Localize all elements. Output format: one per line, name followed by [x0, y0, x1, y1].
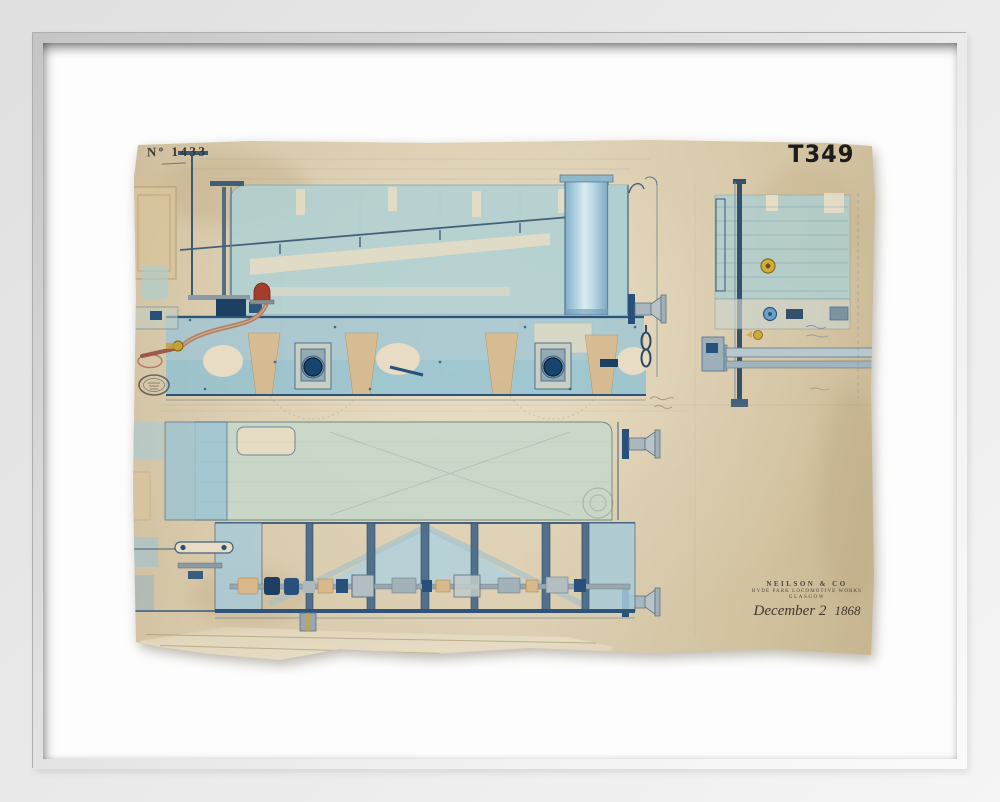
- drawing-shape: [334, 326, 337, 329]
- drawing-shape: [274, 361, 277, 364]
- smokebox-cylinder: [565, 179, 608, 315]
- drawing-shape: [472, 191, 481, 217]
- drawing-shape: [250, 300, 274, 304]
- drawing-shape: [582, 523, 635, 611]
- drawing-shape: [180, 545, 185, 550]
- mat-board: Nº 1433 T349 NEILSON & CO HYDE PARK LOCO…: [43, 43, 957, 759]
- bottom-elevation-view: [130, 422, 660, 631]
- end-section-view: [702, 179, 876, 407]
- drawing-sheet: Nº 1433 T349 NEILSON & CO HYDE PARK LOCO…: [130, 137, 876, 663]
- maker-name: NEILSON & CO: [728, 580, 886, 588]
- drawing-shape: [768, 312, 772, 316]
- drawing-number-label: Nº 1433: [147, 144, 208, 161]
- drawing-shape: [634, 326, 637, 329]
- drawing-shape: [546, 577, 568, 593]
- drawing-shape: [144, 379, 165, 392]
- drawing-shape: [737, 182, 742, 402]
- drawing-shape: [439, 361, 442, 364]
- drawing-shape: [388, 187, 397, 211]
- drawing-shape: [203, 345, 243, 377]
- drawing-shape: [569, 388, 572, 391]
- drawing-shape: [132, 175, 176, 185]
- drawing-shape: [142, 265, 168, 299]
- drawing-sheet-wrap: Nº 1433 T349 NEILSON & CO HYDE PARK LOCO…: [130, 137, 876, 663]
- drawing-shape: [422, 580, 432, 592]
- drawing-shape: [524, 326, 527, 329]
- drawing-shape: [629, 184, 644, 193]
- drawing-shape: [130, 575, 154, 611]
- boiler-pipe: [726, 348, 876, 357]
- drawing-shape: [238, 578, 258, 594]
- cab-panel: [237, 427, 295, 455]
- drawing-shape: [150, 311, 162, 320]
- left-margin-fragments-top: [130, 175, 178, 329]
- drawing-shape: [188, 571, 203, 579]
- drawing-shape: [731, 399, 748, 407]
- drawing-shape: [650, 397, 674, 400]
- catalogue-stamp-label: T349: [788, 140, 854, 168]
- drawing-shape: [336, 579, 348, 593]
- drawing-shape: [565, 309, 608, 315]
- framed-artwork-photo: Nº 1433 T349 NEILSON & CO HYDE PARK LOCO…: [0, 0, 1000, 802]
- maker-inscription: NEILSON & CO HYDE PARK LOCOMOTIVE WORKS …: [728, 580, 886, 620]
- drawing-shape: [526, 580, 538, 592]
- axlebox-1: [295, 343, 331, 389]
- drawing-shape: [608, 185, 628, 315]
- drawing-shape: [130, 422, 164, 460]
- drawing-shape: [284, 578, 299, 595]
- drawing-shape: [369, 388, 372, 391]
- buffer: [628, 294, 666, 324]
- drawing-shape: [130, 472, 150, 520]
- margin-notes: [806, 326, 829, 391]
- drawing-shape: [766, 264, 771, 269]
- drawing-shape: [304, 358, 322, 376]
- drawing-shape: [318, 579, 333, 593]
- drawing-shape: [260, 287, 510, 296]
- drawing-shape: [498, 578, 520, 593]
- drawing-shape: [189, 319, 192, 322]
- drawing-shape: [824, 193, 844, 213]
- drawing-shape: [830, 307, 848, 320]
- drawing-shape: [166, 343, 176, 349]
- axlebox-2: [535, 343, 571, 389]
- drawing-shape: [392, 578, 416, 593]
- drawing-shape: [454, 575, 480, 597]
- drawing-shape: [654, 406, 672, 409]
- drawing-shape: [574, 579, 586, 592]
- maker-date-year: 1868: [834, 603, 860, 618]
- maker-date-script: December 2: [754, 603, 827, 619]
- drawing-shape: [766, 195, 778, 211]
- drawing-shape: [264, 577, 280, 595]
- drawing-shape: [582, 523, 589, 611]
- drawing-shape: [296, 189, 305, 215]
- drawing-shape: [165, 422, 227, 520]
- drawing-shape: [178, 563, 222, 568]
- drawing-shape: [210, 181, 244, 186]
- red-dome-valve: [254, 283, 270, 300]
- valve-chest: [216, 299, 246, 316]
- drawing-shape: [706, 343, 718, 353]
- drawing-shape: [542, 523, 550, 611]
- buffer: [622, 429, 660, 459]
- drawing-shape: [600, 359, 618, 367]
- drawing-shape: [367, 523, 375, 611]
- brass-handle: [754, 331, 763, 340]
- drawing-shape: [306, 523, 313, 611]
- red-oval-stamp: [138, 355, 162, 368]
- drawing-shape: [204, 388, 207, 391]
- top-elevation-view: [130, 151, 666, 419]
- drawing-shape: [746, 331, 752, 338]
- drawing-shape: [560, 175, 613, 182]
- drawing-shape: [221, 545, 226, 550]
- drawing-shape: [215, 609, 635, 613]
- drawing-shape: [806, 335, 828, 337]
- drawing-shape: [130, 537, 158, 567]
- drawing-shape: [645, 177, 657, 185]
- maker-date: December 21868: [728, 603, 886, 620]
- drawing-shape: [810, 388, 829, 390]
- picture-frame: Nº 1433 T349 NEILSON & CO HYDE PARK LOCO…: [33, 33, 967, 769]
- drawing-shape: [352, 575, 374, 597]
- maker-city: GLASGOW: [728, 595, 886, 600]
- drawing-shape: [726, 361, 876, 368]
- drawing-shape: [786, 309, 803, 319]
- drawing-shape: [471, 523, 478, 611]
- ink-oval-stamp: [139, 375, 169, 395]
- maker-works: HYDE PARK LOCOMOTIVE WORKS: [728, 589, 886, 594]
- drawing-shape: [544, 358, 562, 376]
- drawing-shape: [421, 523, 429, 611]
- drawing-shape: [436, 580, 450, 592]
- drawing-shape: [303, 581, 315, 593]
- drawing-shape: [702, 337, 724, 371]
